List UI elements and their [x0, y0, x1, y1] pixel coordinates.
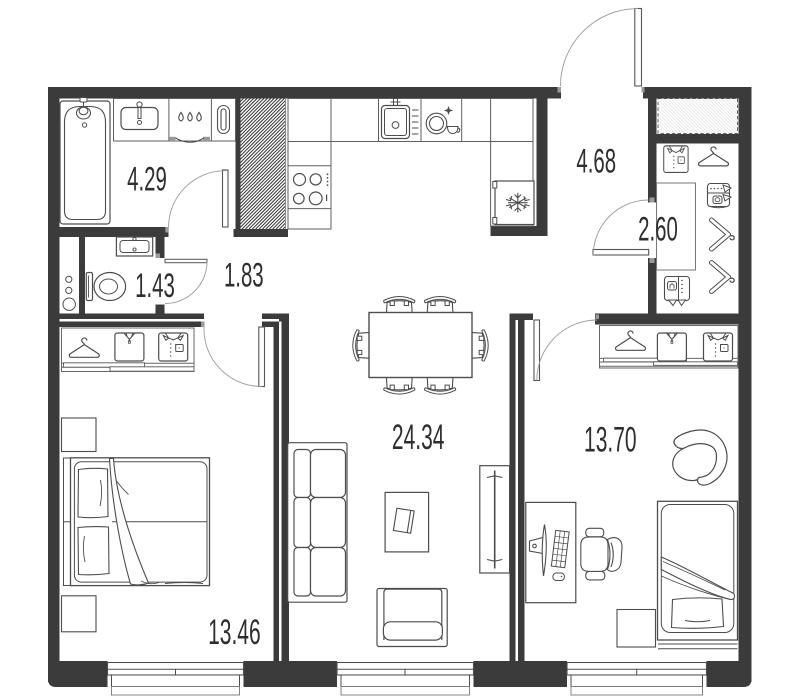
svg-text:13.46: 13.46 [208, 614, 261, 653]
svg-text:4.68: 4.68 [576, 142, 616, 180]
svg-text:2.60: 2.60 [638, 210, 678, 248]
svg-text:1.83: 1.83 [224, 256, 264, 294]
svg-text:4.29: 4.29 [127, 160, 167, 198]
svg-text:13.70: 13.70 [584, 421, 637, 460]
svg-text:1.43: 1.43 [135, 266, 175, 304]
svg-text:24.34: 24.34 [392, 419, 445, 458]
